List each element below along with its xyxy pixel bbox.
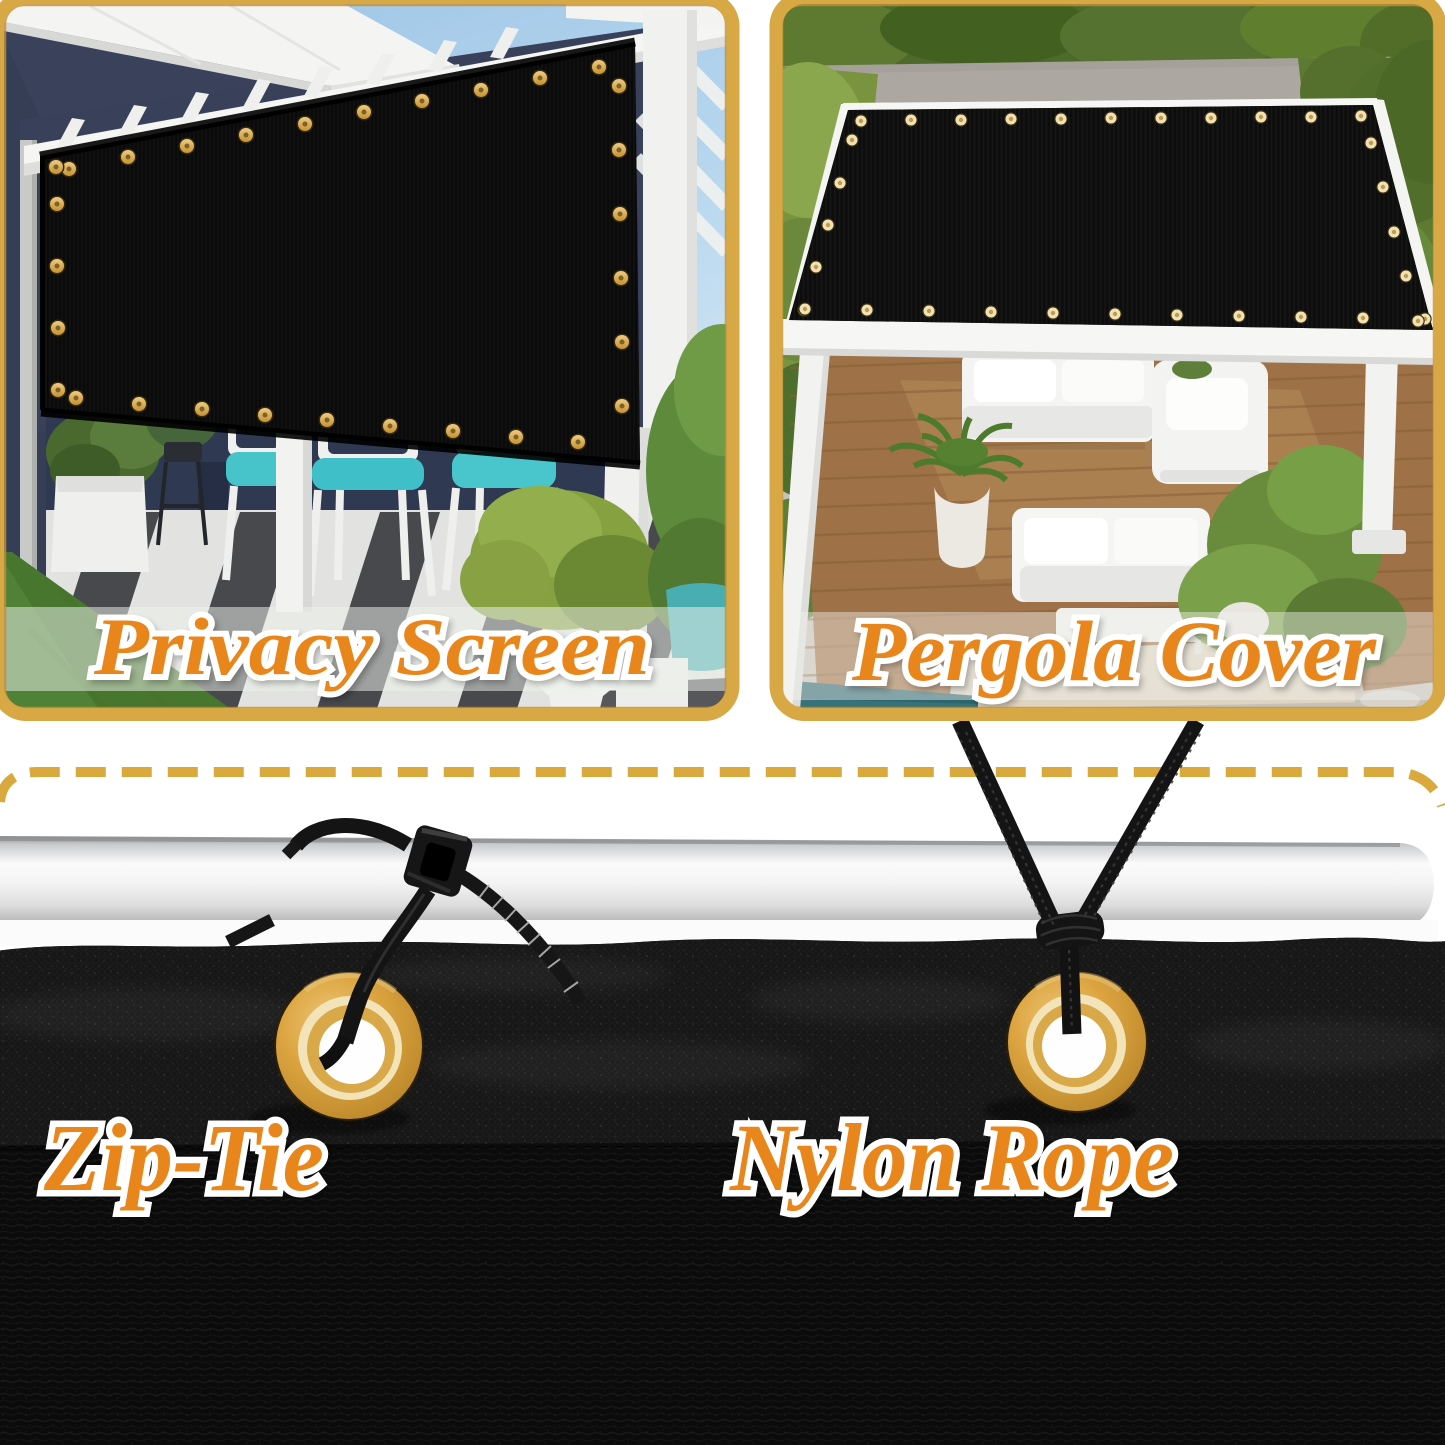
- svg-text:Zip-Tie: Zip-Tie: [43, 1104, 324, 1211]
- svg-text:Privacy Screen: Privacy Screen: [93, 601, 650, 692]
- svg-text:Nylon Rope: Nylon Rope: [729, 1104, 1174, 1211]
- svg-text:Pergola Cover: Pergola Cover: [851, 603, 1378, 699]
